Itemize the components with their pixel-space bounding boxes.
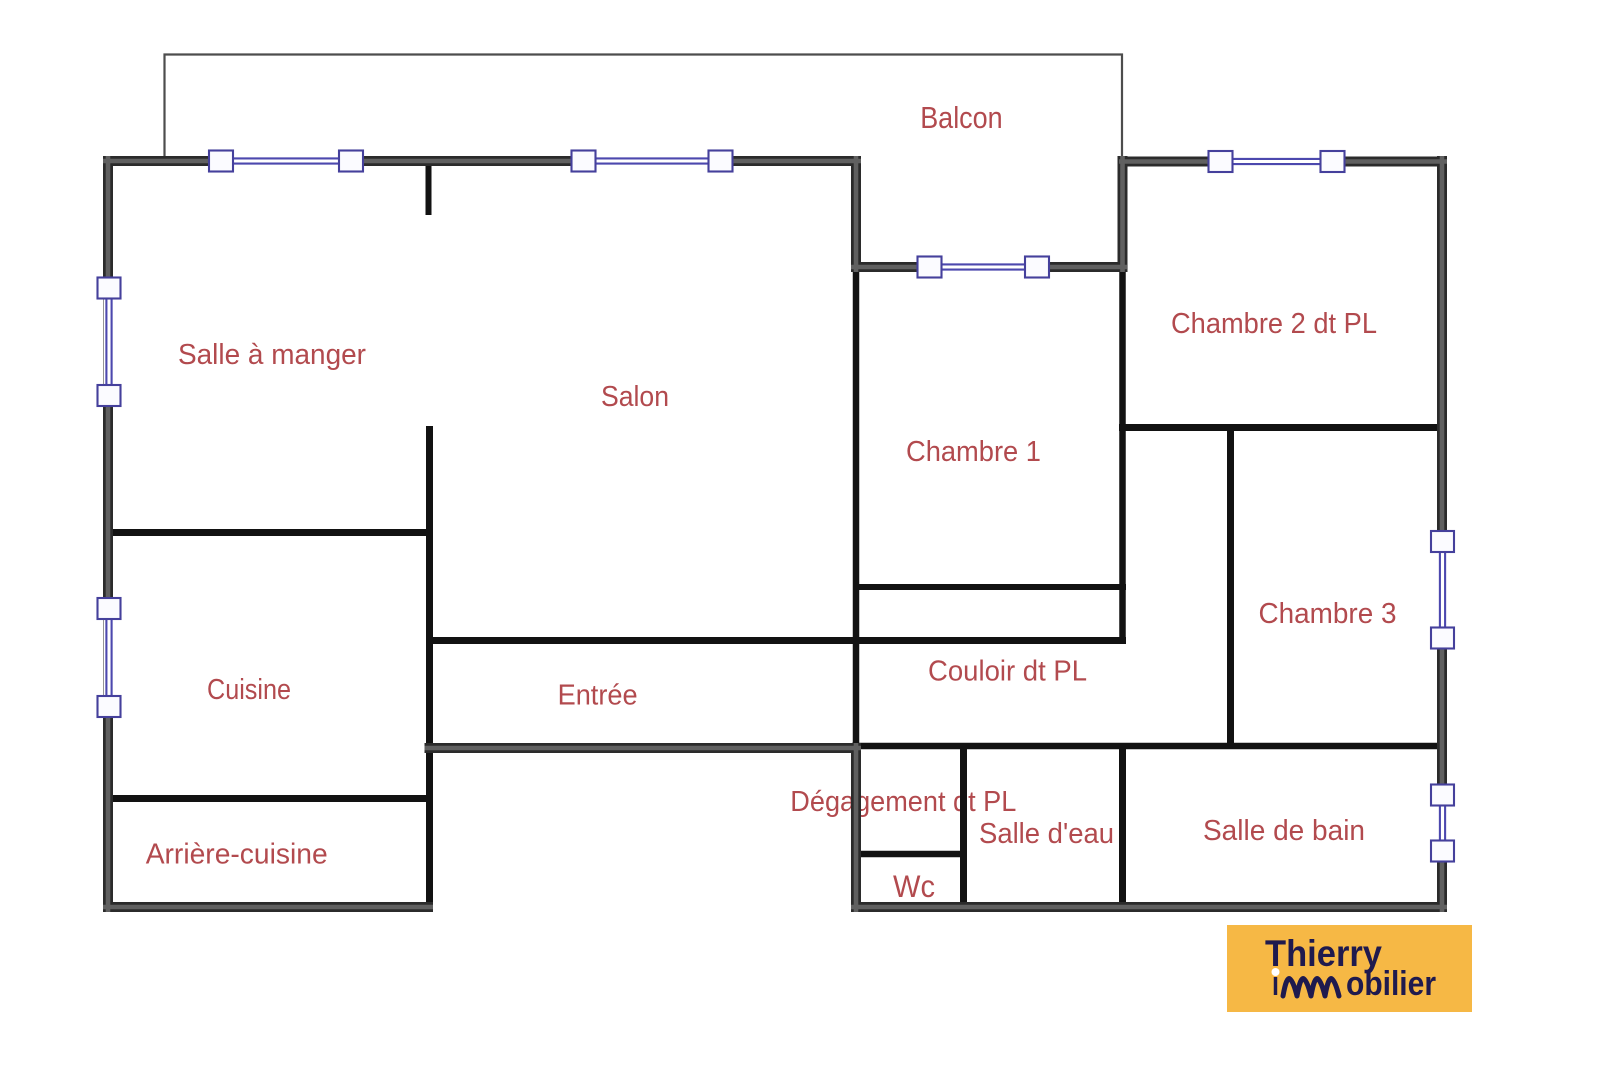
- svg-text:Chambre 1: Chambre 1: [906, 436, 1041, 468]
- svg-text:Dégagement dt PL: Dégagement dt PL: [790, 786, 1016, 818]
- svg-text:Couloir dt PL: Couloir dt PL: [928, 656, 1087, 688]
- svg-text:Salon: Salon: [601, 381, 669, 413]
- svg-text:Entrée: Entrée: [558, 680, 638, 712]
- svg-text:Chambre 2 dt PL: Chambre 2 dt PL: [1171, 308, 1377, 340]
- svg-text:Salle à manger: Salle à manger: [178, 339, 366, 371]
- svg-text:Salle d'eau: Salle d'eau: [979, 818, 1114, 850]
- svg-text:Balcon: Balcon: [920, 100, 1003, 135]
- svg-text:Cuisine: Cuisine: [207, 674, 291, 706]
- svg-text:obilier: obilier: [1346, 965, 1436, 1003]
- svg-text:Chambre 3: Chambre 3: [1259, 598, 1397, 630]
- svg-text:Wc: Wc: [893, 868, 935, 904]
- svg-text:Arrière-cuisine: Arrière-cuisine: [146, 839, 328, 871]
- svg-text:Salle de bain: Salle de bain: [1203, 815, 1365, 847]
